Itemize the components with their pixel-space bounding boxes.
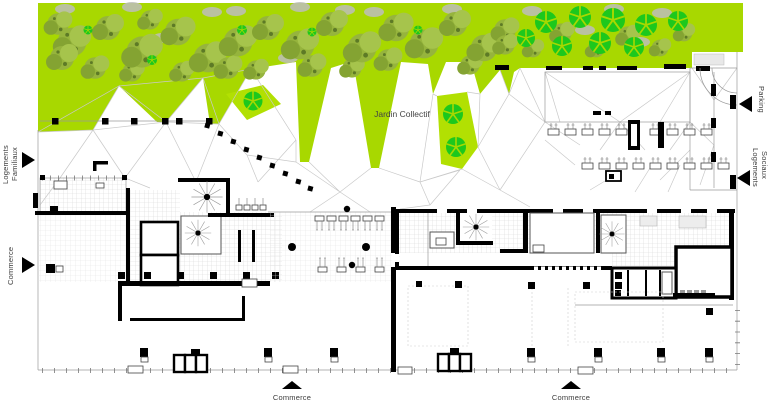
- middle-courtyard: [268, 206, 396, 372]
- label-logements-familiaux-1: Logements: [1, 145, 10, 184]
- label-logements-sociaux-2: Sociaux: [760, 151, 768, 179]
- arrow-up-icon: [282, 381, 302, 389]
- arrow-up-icon: [561, 381, 581, 389]
- arrow-left-icon: [739, 96, 752, 112]
- arrow-right-icon: [22, 152, 35, 168]
- elevator-block: [612, 268, 676, 298]
- street-columns: [140, 348, 713, 362]
- garden-label: Jardin Collectif: [374, 109, 430, 119]
- kiosk-left: [174, 349, 207, 372]
- arrow-left-icon: [737, 170, 750, 186]
- kiosk-right: [438, 348, 471, 371]
- sink-fixtures: [236, 198, 266, 210]
- bike-rack-court: [548, 111, 729, 181]
- site-plan-page: { "plan": { "garden_label": "Jardin Coll…: [0, 0, 768, 403]
- arrow-right-icon: [22, 257, 35, 273]
- label-logements-familiaux-2: Familiaux: [10, 147, 19, 181]
- parking-access-strip: [694, 54, 737, 189]
- site-plan-drawing: Jardin Collectif Logements Familiaux Com…: [0, 0, 768, 403]
- label-commerce-bottom-left: Commerce: [273, 393, 311, 402]
- left-building: [33, 161, 282, 321]
- right-building: [395, 209, 735, 300]
- garden-patch-b: [437, 92, 478, 169]
- label-commerce-bottom-right: Commerce: [552, 393, 590, 402]
- label-commerce-left: Commerce: [6, 247, 15, 285]
- label-parking: Parking: [757, 86, 766, 113]
- label-logements-sociaux-1: Logements: [751, 148, 760, 187]
